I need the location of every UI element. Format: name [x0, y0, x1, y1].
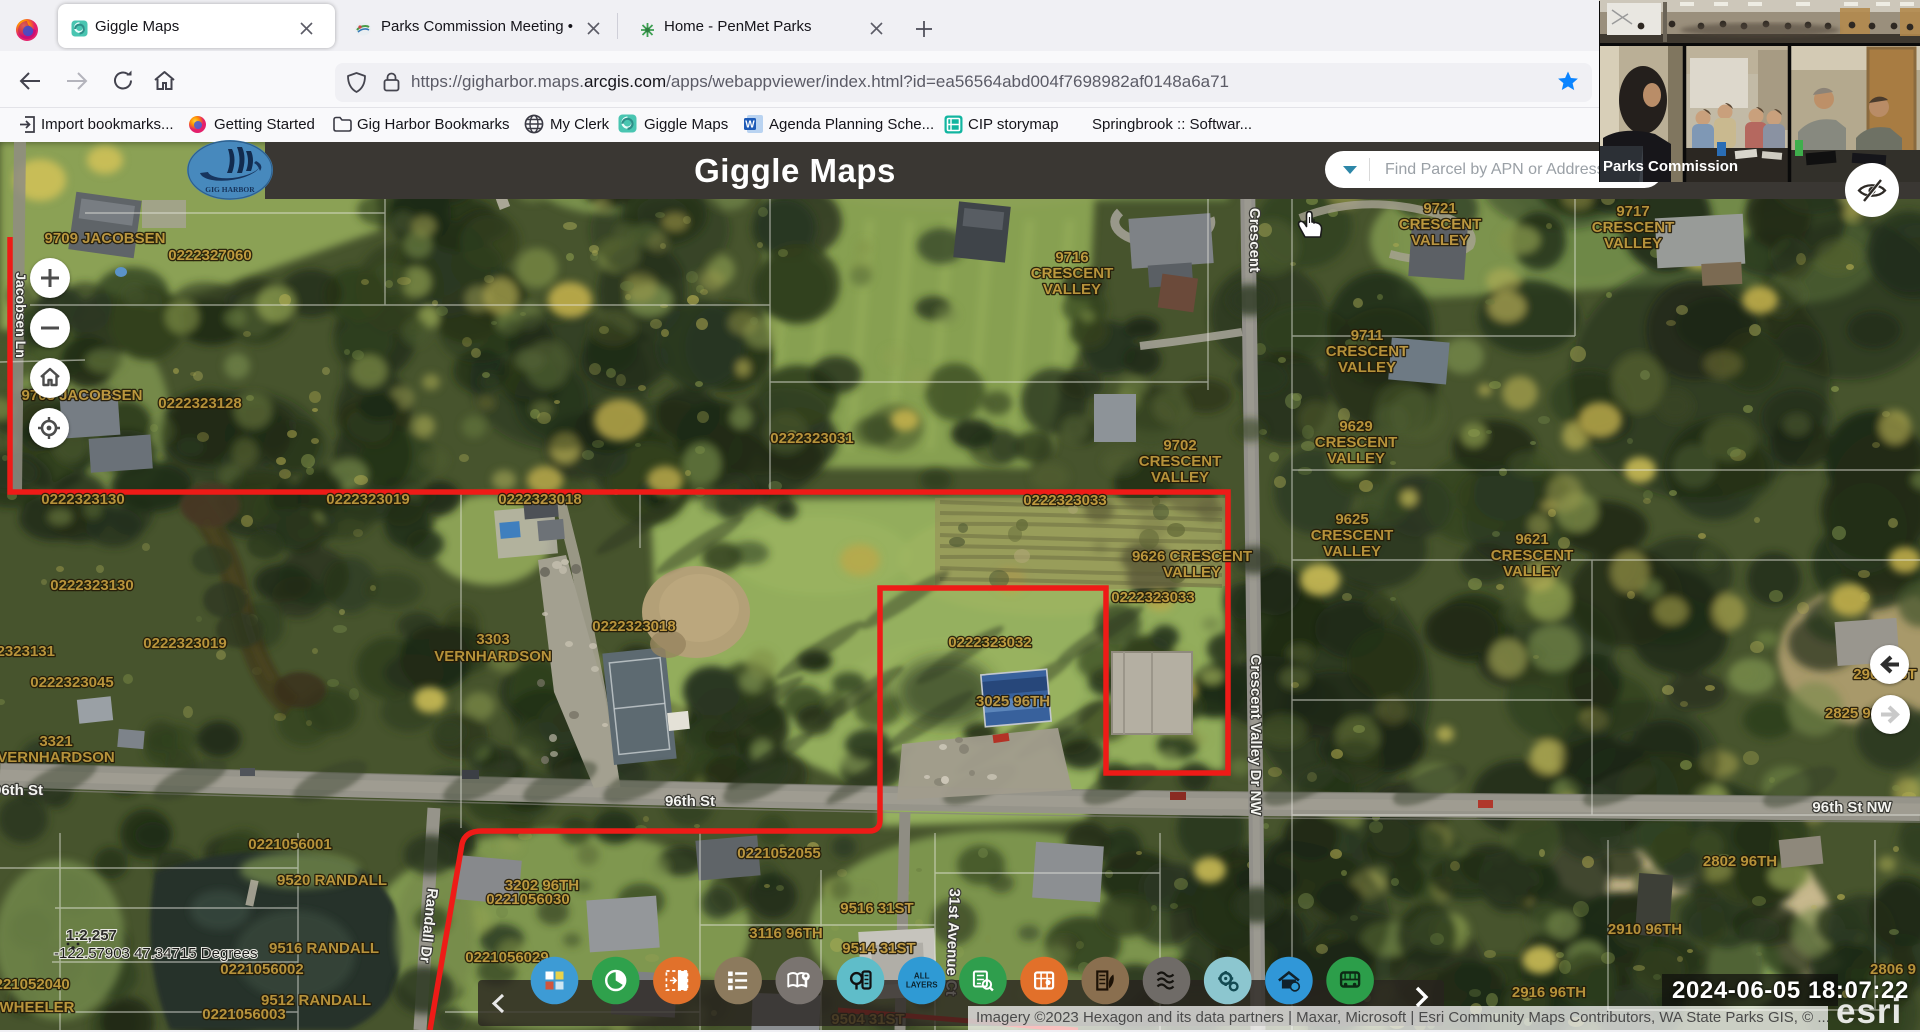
svg-text:3321: 3321	[39, 733, 72, 750]
svg-text:0222323130: 0222323130	[41, 491, 124, 508]
svg-text:VALLEY: VALLEY	[1043, 281, 1101, 298]
svg-text:9716: 9716	[1055, 249, 1088, 266]
svg-text:CRESCENT: CRESCENT	[1315, 434, 1398, 451]
svg-text:0222323131: 0222323131	[0, 643, 55, 660]
svg-text:0222323018: 0222323018	[592, 618, 675, 635]
svg-text:0222327060: 0222327060	[168, 247, 251, 264]
svg-text:0221052055: 0221052055	[737, 845, 820, 862]
svg-text:0221056003: 0221056003	[202, 1006, 285, 1023]
svg-text:0222323031: 0222323031	[770, 430, 853, 447]
svg-text:GIG HARBOR: GIG HARBOR	[205, 185, 255, 194]
svg-text:96th St: 96th St	[665, 793, 715, 810]
svg-text:VALLEY: VALLEY	[1411, 232, 1469, 249]
svg-text:CRESCENT: CRESCENT	[1311, 527, 1394, 544]
svg-text:VERNHARDSON: VERNHARDSON	[434, 648, 552, 665]
svg-text:0222323033: 0222323033	[1023, 492, 1106, 509]
svg-text:WHEELER: WHEELER	[0, 999, 75, 1016]
svg-text:CRESCENT: CRESCENT	[1326, 343, 1409, 360]
svg-text:9717: 9717	[1616, 203, 1649, 220]
svg-text:Parks Commission: Parks Commission	[1603, 158, 1738, 175]
svg-text:3303: 3303	[476, 631, 509, 648]
svg-text:CRESCENT: CRESCENT	[1031, 265, 1114, 282]
svg-text:0221056001: 0221056001	[248, 836, 331, 853]
svg-text:VALLEY: VALLEY	[1151, 469, 1209, 486]
svg-text:VALLEY: VALLEY	[1604, 235, 1662, 252]
svg-text:Crescent Valley Dr NW: Crescent Valley Dr NW	[1247, 655, 1264, 817]
svg-text:0222323045: 0222323045	[30, 674, 113, 691]
svg-text:CRESCENT: CRESCENT	[1399, 216, 1482, 233]
svg-text:CRESCENT: CRESCENT	[1491, 547, 1574, 564]
svg-text:VALLEY: VALLEY	[1503, 563, 1561, 580]
svg-text:VERNHARDSON: VERNHARDSON	[0, 749, 115, 766]
svg-text:0221052040: 0221052040	[0, 976, 70, 993]
svg-text:9520 RANDALL: 9520 RANDALL	[277, 872, 387, 889]
svg-text:0222323018: 0222323018	[498, 491, 581, 508]
svg-text:0222323032: 0222323032	[948, 634, 1031, 651]
svg-text:3116 96TH: 3116 96TH	[749, 925, 822, 942]
svg-text:9629: 9629	[1339, 418, 1372, 435]
svg-text:0222323019: 0222323019	[326, 491, 409, 508]
svg-text:9516 31ST: 9516 31ST	[840, 900, 913, 917]
svg-text:Jacobsen Ln: Jacobsen Ln	[13, 272, 29, 358]
svg-text:9621: 9621	[1515, 531, 1548, 548]
svg-text:Crescent: Crescent	[1246, 208, 1263, 272]
svg-text:9709 JACOBSEN: 9709 JACOBSEN	[45, 230, 166, 247]
svg-text:2910 96TH: 2910 96TH	[1608, 921, 1682, 938]
svg-text:2916 96TH: 2916 96TH	[1512, 984, 1586, 1001]
svg-text:VALLEY: VALLEY	[1338, 359, 1396, 376]
svg-text:0222323033: 0222323033	[1111, 589, 1194, 606]
svg-text:-122.57903 47.34715 Degrees: -122.57903 47.34715 Degrees	[54, 945, 258, 962]
svg-text:0222323130: 0222323130	[50, 577, 133, 594]
svg-text:96th St NW: 96th St NW	[1812, 799, 1892, 816]
svg-text:VALLEY: VALLEY	[1327, 450, 1385, 467]
svg-text:CRESCENT: CRESCENT	[1592, 219, 1675, 236]
svg-text:0221056002: 0221056002	[220, 961, 303, 978]
svg-text:3025 96TH: 3025 96TH	[976, 693, 1050, 710]
svg-text:LAYERS: LAYERS	[906, 981, 938, 990]
svg-text:9626 CRESCENT: 9626 CRESCENT	[1132, 548, 1252, 565]
svg-text:9516 RANDALL: 9516 RANDALL	[269, 940, 379, 957]
svg-text:0222323019: 0222323019	[143, 635, 226, 652]
svg-text:96th St: 96th St	[0, 782, 43, 799]
svg-text:2806 9: 2806 9	[1870, 961, 1916, 978]
svg-text:0222323128: 0222323128	[158, 395, 241, 412]
svg-text:1:2,257: 1:2,257	[66, 927, 117, 944]
svg-text:VALLEY: VALLEY	[1163, 564, 1221, 581]
svg-text:9711: 9711	[1351, 327, 1384, 344]
svg-text:CRESCENT: CRESCENT	[1139, 453, 1222, 470]
svg-text:ALL: ALL	[914, 972, 930, 981]
svg-text:9702: 9702	[1163, 437, 1196, 454]
svg-text:VALLEY: VALLEY	[1323, 543, 1381, 560]
svg-text:0221056030: 0221056030	[486, 891, 569, 908]
svg-text:9625: 9625	[1335, 511, 1368, 528]
svg-text:W: W	[745, 120, 755, 131]
svg-text:2802 96TH: 2802 96TH	[1703, 853, 1777, 870]
svg-text:9721: 9721	[1423, 200, 1456, 217]
